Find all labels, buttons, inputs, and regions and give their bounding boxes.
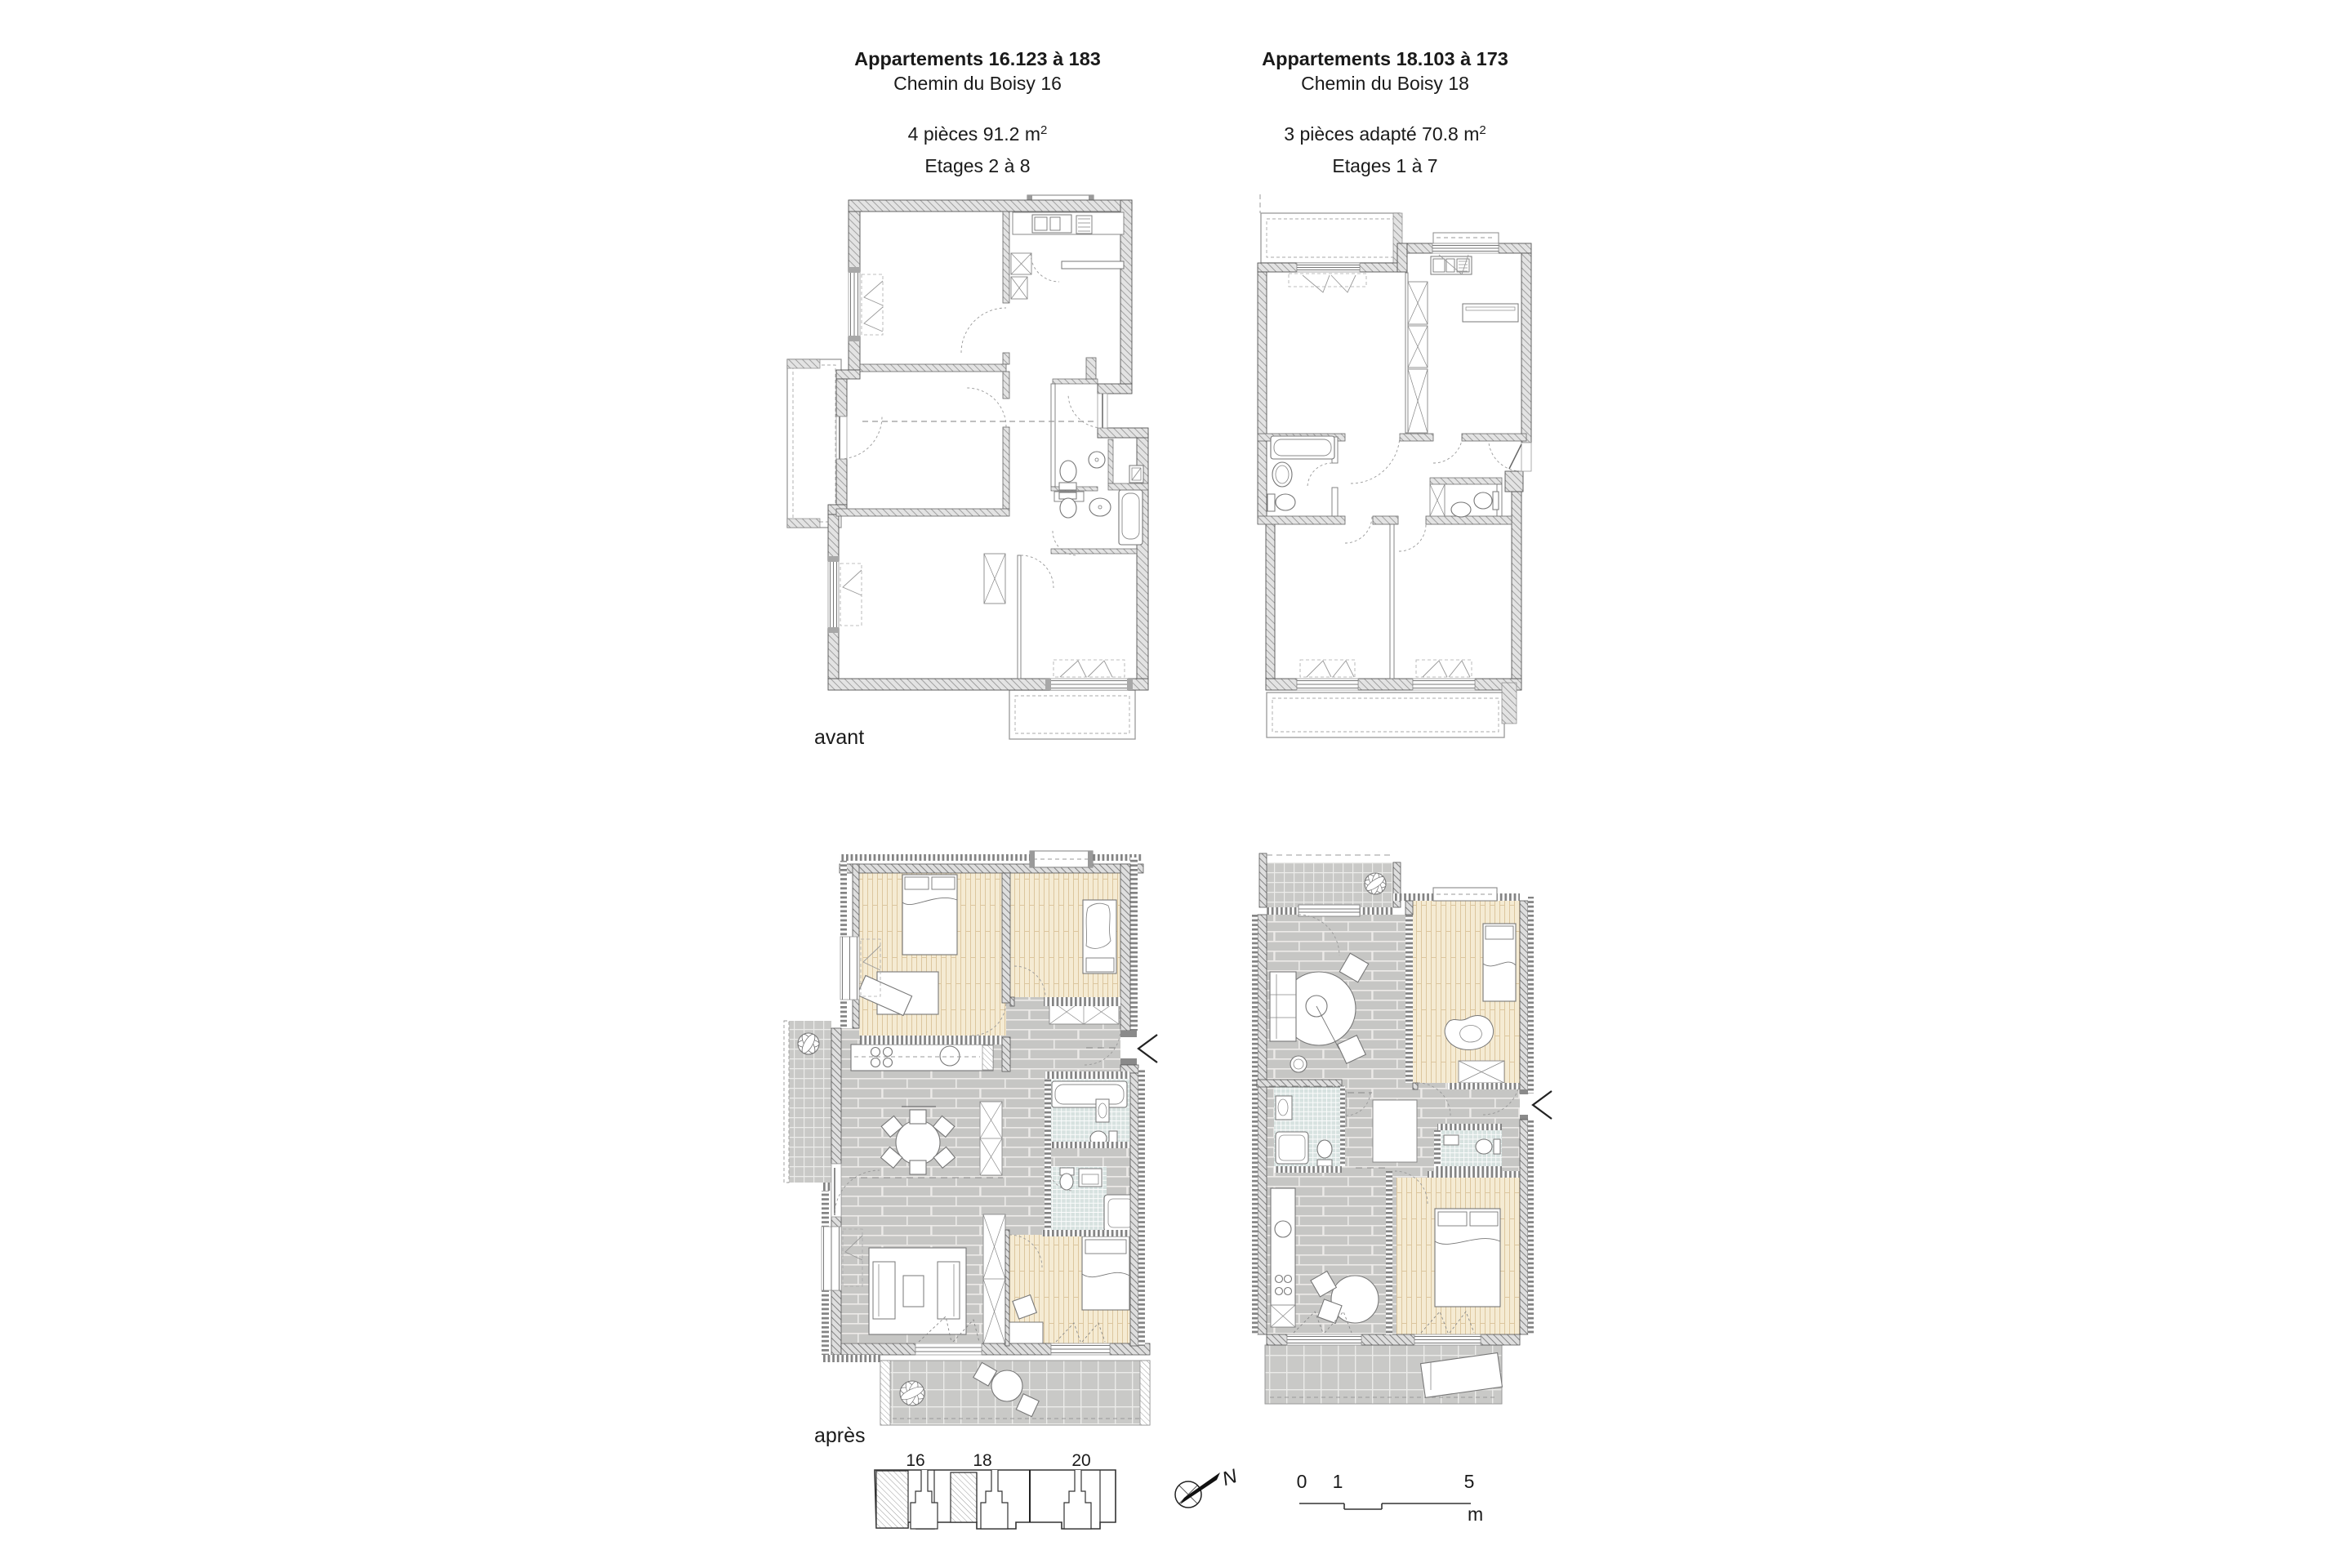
- svg-text:16: 16: [906, 1451, 924, 1470]
- svg-text:18: 18: [973, 1451, 991, 1470]
- svg-text:0: 0: [1297, 1471, 1307, 1492]
- svg-text:m: m: [1468, 1503, 1483, 1525]
- svg-text:Appartements 16.123 à 183: Appartements 16.123 à 183: [854, 48, 1101, 69]
- svg-text:Chemin du Boisy 16: Chemin du Boisy 16: [893, 73, 1062, 94]
- svg-text:4 pièces 91.2 m2: 4 pièces 91.2 m2: [908, 123, 1048, 145]
- svg-text:après: après: [814, 1424, 866, 1447]
- svg-text:Appartements 18.103 à 173: Appartements 18.103 à 173: [1262, 48, 1508, 69]
- svg-text:1: 1: [1333, 1471, 1343, 1492]
- svg-text:5: 5: [1464, 1471, 1475, 1492]
- svg-text:Etages 1 à 7: Etages 1 à 7: [1332, 155, 1437, 176]
- svg-text:Etages 2 à 8: Etages 2 à 8: [924, 155, 1030, 176]
- svg-text:Chemin du Boisy 18: Chemin du Boisy 18: [1301, 73, 1469, 94]
- svg-text:20: 20: [1071, 1451, 1090, 1470]
- svg-text:3 pièces adapté 70.8 m2: 3 pièces adapté 70.8 m2: [1284, 123, 1486, 145]
- svg-text:avant: avant: [814, 726, 864, 749]
